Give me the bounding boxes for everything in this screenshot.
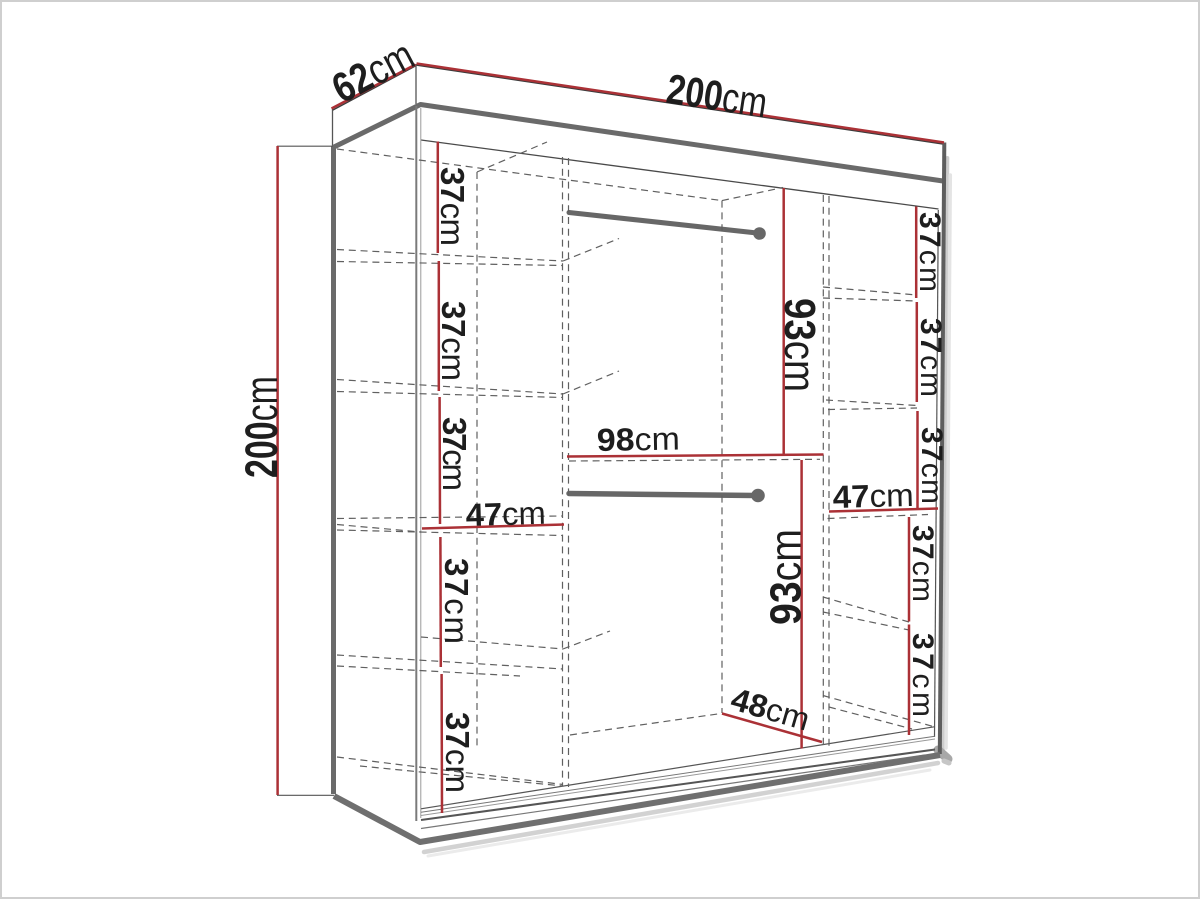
svg-text:93cm: 93cm [775, 298, 824, 392]
svg-text:37cm: 37cm [906, 633, 939, 717]
svg-text:200cm: 200cm [236, 376, 287, 478]
svg-text:200cm: 200cm [664, 65, 771, 127]
svg-text:37cm: 37cm [436, 417, 473, 491]
svg-text:37cm: 37cm [913, 212, 946, 292]
svg-text:37cm: 37cm [914, 318, 947, 397]
svg-text:47cm: 47cm [465, 495, 546, 533]
svg-text:47cm: 47cm [832, 477, 914, 515]
svg-text:37cm: 37cm [439, 712, 476, 793]
svg-text:37cm: 37cm [435, 301, 472, 381]
svg-text:93cm: 93cm [762, 529, 811, 625]
svg-text:37cm: 37cm [906, 525, 939, 602]
svg-text:62cm: 62cm [324, 31, 421, 112]
svg-text:37cm: 37cm [438, 558, 475, 644]
svg-text:37cm: 37cm [915, 427, 948, 504]
svg-text:37cm: 37cm [434, 167, 471, 246]
svg-text:98cm: 98cm [596, 421, 680, 458]
